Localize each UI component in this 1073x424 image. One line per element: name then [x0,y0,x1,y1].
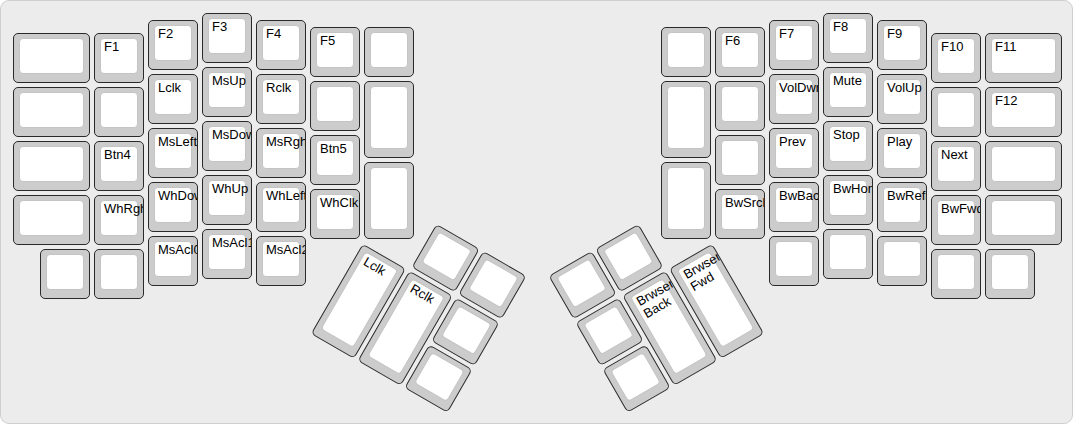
key-label: Lclk [158,81,198,95]
key-label: MsAcl0 [158,243,198,257]
key-label: MsLeft [158,135,198,149]
keycap-face: F8 [829,18,867,54]
key-label: Btn4 [104,148,144,162]
key-prev[interactable]: Prev [769,128,819,178]
key-lclk[interactable]: Lclk [148,74,198,124]
key-btn5[interactable]: Btn5 [310,135,360,185]
key-label: F11 [995,40,1041,54]
key-label [488,262,526,285]
key-f1[interactable]: F1 [94,33,144,83]
key-f9[interactable]: F9 [877,20,927,70]
key-label: VolDwn [779,81,819,95]
key-f8[interactable]: F8 [823,13,873,63]
key-f2[interactable]: F2 [148,20,198,70]
key-blank[interactable] [661,162,711,239]
keycap-face [556,258,607,308]
key-label: Play [887,135,927,149]
key-blank[interactable] [13,195,90,245]
key-blank[interactable] [94,87,144,137]
key-whleft[interactable]: WhLeft [256,182,306,232]
key-blank[interactable] [661,81,711,158]
key-blank[interactable] [13,87,90,137]
keycap-face: F6 [721,32,759,68]
key-stop[interactable]: Stop [823,121,873,171]
key-f7[interactable]: F7 [769,20,819,70]
key-msacl2[interactable]: MsAcl2 [256,236,306,286]
key-blank[interactable] [661,27,711,77]
key-label: F8 [833,20,873,34]
keycap-face [937,254,975,290]
keyboard-case: F1F2F3F4F5LclkMsUpRclkBtn4MsLeftMsDownMs… [0,0,1073,424]
key-label: BwBack [779,189,819,203]
key-label: MsUp [212,74,252,88]
keycap-face: Btn5 [316,140,354,176]
keycap-face [316,86,354,122]
keycap-face: Rclk [262,79,300,115]
keycap-face [100,254,138,290]
key-f5[interactable]: F5 [310,27,360,77]
key-label: F6 [725,34,765,48]
key-label: WhRght [104,202,144,216]
key-label: F1 [104,40,144,54]
keycap-face: WhUp [208,180,246,216]
key-label: Next [941,148,981,162]
key-blank[interactable] [931,249,981,299]
key-label: Lclk [361,254,406,289]
key-f10[interactable]: F10 [931,33,981,83]
key-label: BwFwd [941,202,981,216]
keycap-face: WhLeft [262,187,300,223]
keycap-face: Next [937,146,975,182]
keycap-face [991,254,1029,290]
key-blank[interactable] [823,229,873,279]
keycap-face: WhRght [100,200,138,236]
keycap-face: MsAcl0 [154,241,192,277]
key-label: WhDown [158,189,198,203]
key-blank[interactable] [364,81,414,158]
key-f6[interactable]: F6 [715,27,765,77]
key-f12[interactable]: F12 [985,87,1062,137]
key-label: Rclk [266,81,306,95]
keycap-face [468,258,519,308]
keycap-face: F12 [991,92,1056,128]
key-bwhome[interactable]: BwHome [823,175,873,225]
keycap-face [19,146,84,182]
key-f4[interactable]: F4 [256,20,306,70]
key-msdown[interactable]: MsDown [202,121,252,171]
keycap-face: MsDown [208,126,246,162]
key-label: Mute [833,74,873,88]
key-whclk[interactable]: WhClk [310,189,360,239]
key-whdown[interactable]: WhDown [148,182,198,232]
key-label: Stop [833,128,873,142]
key-mute[interactable]: Mute [823,67,873,117]
key-label: MsAcl2 [266,243,306,257]
keycap-face: VolUp [883,79,921,115]
key-label: VolUp [887,81,927,95]
key-msup[interactable]: MsUp [202,67,252,117]
key-label: BwHome [833,182,873,196]
keycap-face: Stop [829,126,867,162]
keycap-face: F10 [937,38,975,74]
keycap-face: Mute [829,72,867,108]
key-msleft[interactable]: MsLeft [148,128,198,178]
key-label: WhClk [320,196,360,210]
keycap-face: Btn4 [100,146,138,182]
keycap-face: WhDown [154,187,192,223]
key-blank[interactable] [13,141,90,191]
key-blank[interactable] [364,27,414,77]
key-btn4[interactable]: Btn4 [94,141,144,191]
key-label: BwRefr [887,189,927,203]
key-label: F2 [158,27,198,41]
keycap-face: Lclk [154,79,192,115]
keycap-face: BwRefr [883,187,921,223]
key-msacl1[interactable]: MsAcl1 [202,229,252,279]
key-f11[interactable]: F11 [985,33,1062,83]
keycap-face [667,167,705,230]
keycap-face [100,92,138,128]
keycap-face: MsAcl2 [262,241,300,277]
keycap-face: Play [883,133,921,169]
keycap-face: BwSrch [721,194,759,230]
key-bwfwd[interactable]: BwFwd [931,195,981,245]
key-bwsrch[interactable]: BwSrch [715,189,765,239]
keycap-face: F4 [262,25,300,61]
key-label: MsRght [266,135,306,149]
keycap-face [991,146,1056,182]
key-label: F4 [266,27,306,41]
keycap-face [667,86,705,149]
key-label: MsDown [212,128,252,142]
keycap-face [721,140,759,176]
key-label: Prev [779,135,819,149]
keycap-face: F7 [775,25,813,61]
keycap-face: F2 [154,25,192,61]
key-blank[interactable] [13,33,90,83]
key-blank[interactable] [931,87,981,137]
keycap-face [829,234,867,270]
keycap-face [583,305,634,355]
key-next[interactable]: Next [931,141,981,191]
keycap-face [421,231,472,281]
keycap-face [883,241,921,277]
keycap-face [370,167,408,230]
keycap-face: MsLeft [154,133,192,169]
key-label: F5 [320,34,360,48]
key-blank[interactable] [364,162,414,239]
key-label: F7 [779,27,819,41]
key-blank[interactable] [985,195,1062,245]
keycap-face [19,38,84,74]
keycap-face [667,32,705,68]
key-blank[interactable] [94,249,144,299]
keycap-face: VolDwn [775,79,813,115]
key-label [442,235,480,258]
key-label [607,227,647,250]
key-blank[interactable] [40,249,90,299]
key-blank[interactable] [310,81,360,131]
key-label: F10 [941,40,981,54]
key-msacl0[interactable]: MsAcl0 [148,236,198,286]
key-label: WhLeft [266,189,306,203]
key-label: F3 [212,20,252,34]
key-whup[interactable]: WhUp [202,175,252,225]
key-f3[interactable]: F3 [202,13,252,63]
keycap-face: F5 [316,32,354,68]
key-play[interactable]: Play [877,128,927,178]
keycap-face [721,86,759,122]
key-bwrefr[interactable]: BwRefr [877,182,927,232]
key-label [561,254,601,277]
key-voldwn[interactable]: VolDwn [769,74,819,124]
key-msrght[interactable]: MsRght [256,128,306,178]
key-volup[interactable]: VolUp [877,74,927,124]
keycap-face: BwHome [829,180,867,216]
keycap-face [775,241,813,277]
key-blank[interactable] [877,236,927,286]
key-rclk[interactable]: Rclk [256,74,306,124]
keycap-face: MsRght [262,133,300,169]
keycap-face: F11 [991,38,1056,74]
key-label: MsAcl1 [212,236,252,250]
keycap-face: BwFwd [937,200,975,236]
keycap-face: MsUp [208,72,246,108]
keycap-face: F9 [883,25,921,61]
keycap-face [19,200,84,236]
keycap-face: WhClk [316,194,354,230]
keycap-face: Prev [775,133,813,169]
keycap-face [441,305,492,355]
keycap-face [610,351,661,401]
key-label: F12 [995,94,1041,108]
keycap-face [46,254,84,290]
keycap-face [370,86,408,149]
key-label: BwSrch [725,196,765,210]
key-label: F9 [887,27,927,41]
key-blank[interactable] [715,135,765,185]
keycap-face [370,32,408,68]
keycap-face [937,92,975,128]
key-blank[interactable] [769,236,819,286]
key-bwback[interactable]: BwBack [769,182,819,232]
key-label: Brwser Fwd [681,246,735,293]
keycap-face: F3 [208,18,246,54]
key-blank[interactable] [985,141,1062,191]
keycap-face: BwBack [775,187,813,223]
key-blank[interactable] [985,249,1035,299]
keycap-face [19,92,84,128]
key-label: Btn5 [320,142,360,156]
keycap-face [991,200,1056,236]
key-blank[interactable] [715,81,765,131]
keycap-face: F1 [100,38,138,74]
keycap-face [603,231,654,281]
keycap-face: MsAcl1 [208,234,246,270]
key-whrght[interactable]: WhRght [94,195,144,245]
key-label: WhUp [212,182,252,196]
keycap-face [414,351,465,401]
